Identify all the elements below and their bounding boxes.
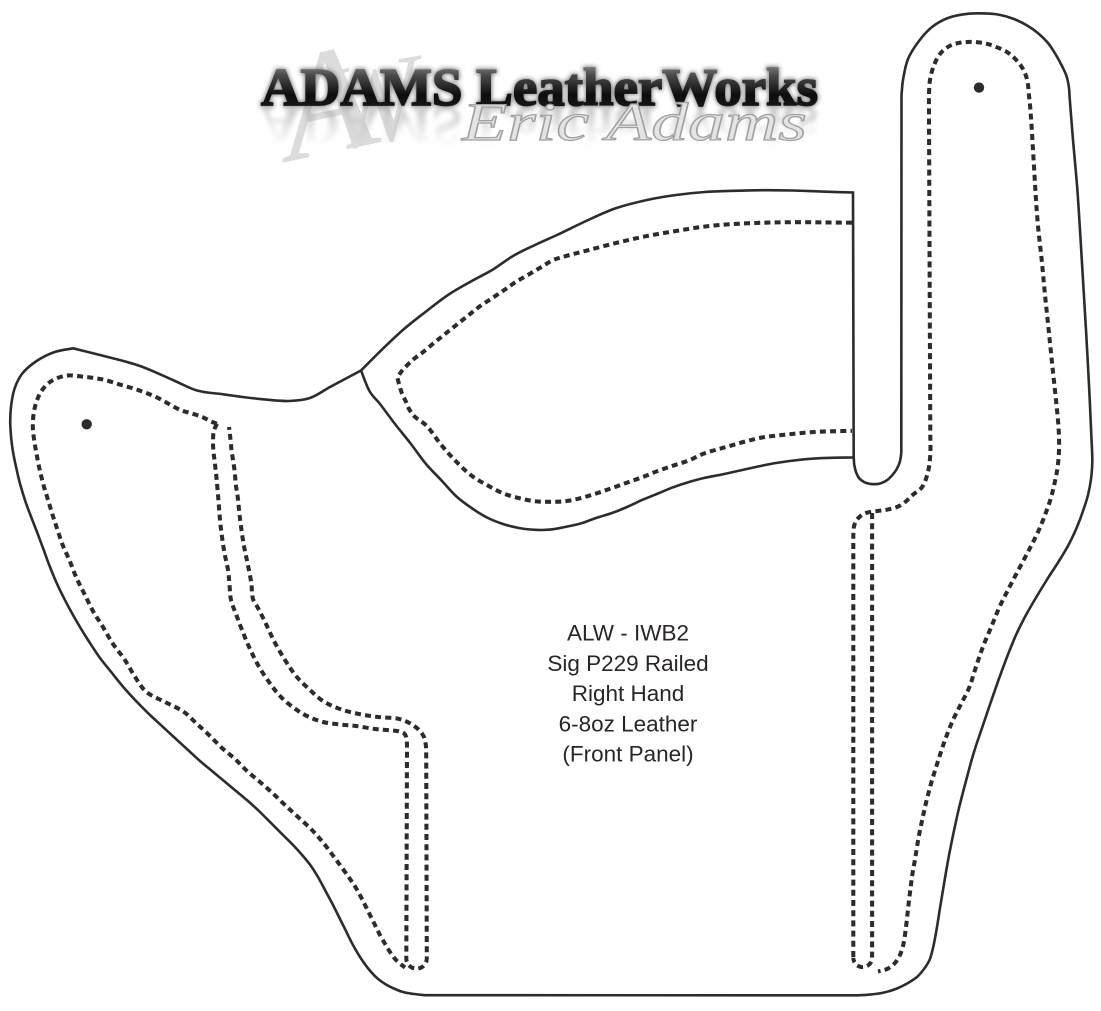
svg-text:ALW - IWB2: ALW - IWB2 bbox=[567, 621, 689, 646]
svg-text:6-8oz Leather: 6-8oz Leather bbox=[559, 711, 698, 736]
svg-text:Eric Adams: Eric Adams bbox=[461, 92, 807, 152]
svg-text:Right Hand: Right Hand bbox=[572, 681, 685, 706]
svg-text:Sig P229 Railed: Sig P229 Railed bbox=[547, 651, 708, 676]
svg-text:(Front Panel): (Front Panel) bbox=[562, 742, 693, 767]
